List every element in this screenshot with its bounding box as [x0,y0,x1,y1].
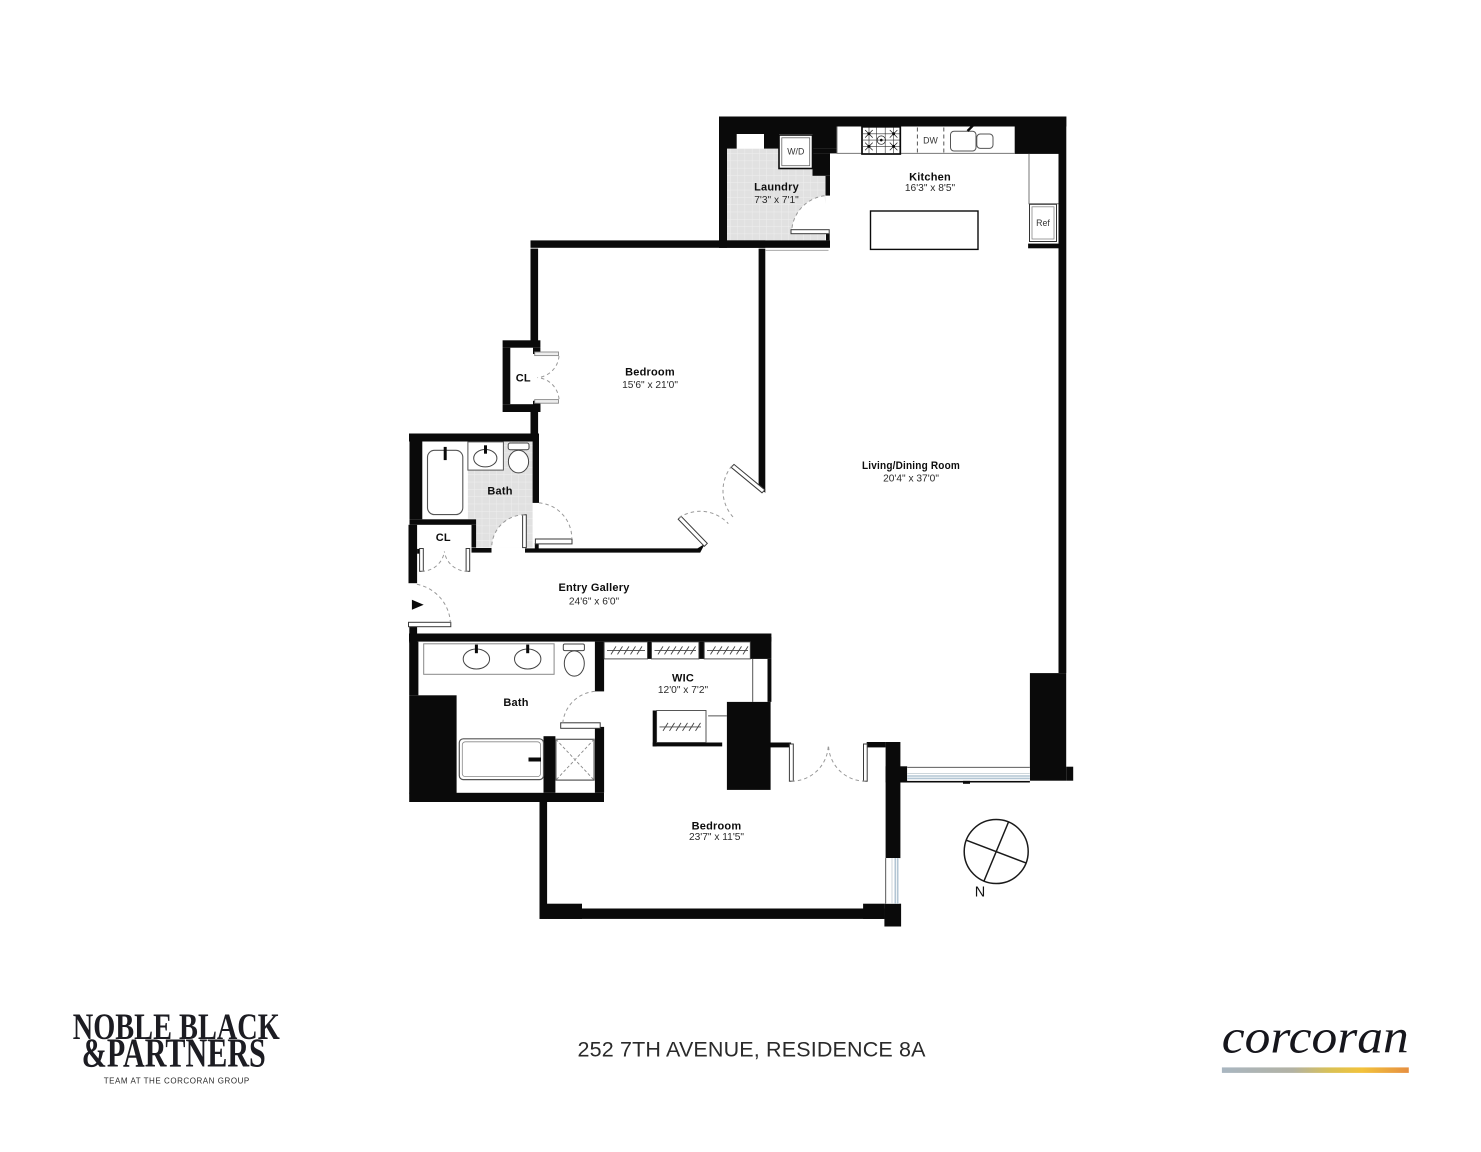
svg-text:15'6" x 21'0": 15'6" x 21'0" [622,380,678,391]
svg-text:Laundry: Laundry [754,181,799,193]
svg-text:TEAM AT THE CORCORAN GROUP: TEAM AT THE CORCORAN GROUP [104,1076,250,1085]
svg-text:20'4" x 37'0": 20'4" x 37'0" [883,474,939,485]
svg-text:Bedroom: Bedroom [625,367,675,379]
svg-text:7'3" x 7'1": 7'3" x 7'1" [754,195,799,206]
svg-text:W/D: W/D [787,147,804,157]
svg-text:Kitchen: Kitchen [909,171,951,183]
svg-text:Entry Gallery: Entry Gallery [558,582,630,594]
svg-text:24'6" x 6'0": 24'6" x 6'0" [569,597,620,608]
svg-text:12'0" x 7'2": 12'0" x 7'2" [658,685,709,696]
svg-text:N: N [975,885,985,901]
svg-text:DW: DW [923,135,938,145]
svg-text:&PARTNERS: &PARTNERS [82,1030,266,1076]
svg-text:corcoran: corcoran [1222,1011,1409,1064]
svg-text:Bath: Bath [487,486,512,498]
svg-text:16'3" x 8'5": 16'3" x 8'5" [905,183,956,194]
svg-text:WIC: WIC [672,673,694,685]
svg-text:252 7TH AVENUE, RESIDENCE 8A: 252 7TH AVENUE, RESIDENCE 8A [578,1037,927,1061]
svg-text:Ref: Ref [1036,218,1050,228]
svg-text:CL: CL [516,373,531,385]
svg-text:CL: CL [436,532,451,544]
svg-text:23'7" x 11'5": 23'7" x 11'5" [689,832,744,843]
svg-text:Bath: Bath [503,697,528,709]
svg-text:Bedroom: Bedroom [692,820,742,832]
svg-text:Living/Dining Room: Living/Dining Room [862,460,960,472]
